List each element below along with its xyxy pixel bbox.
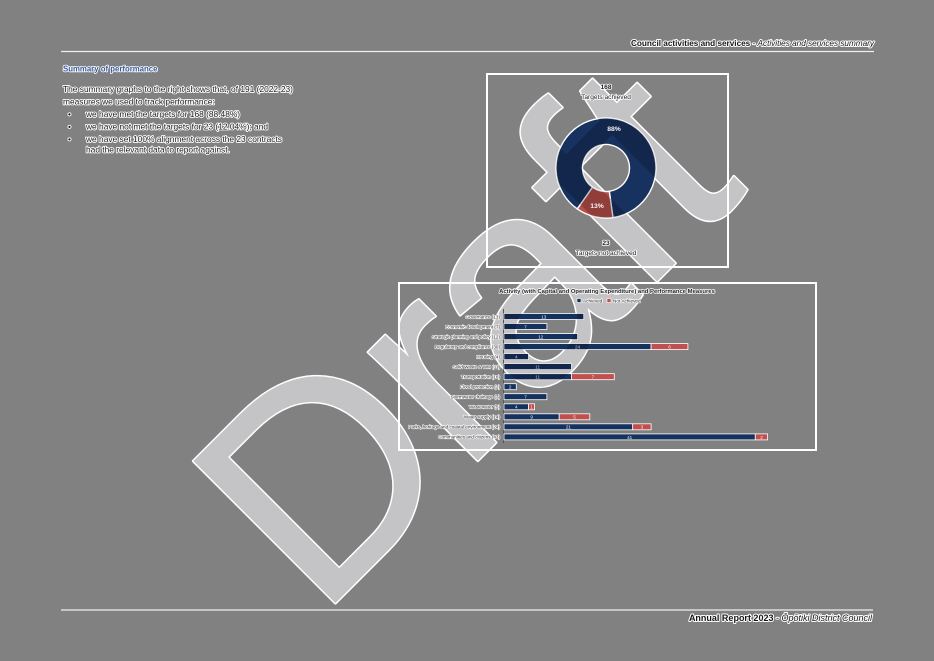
svg-text:3: 3 bbox=[641, 425, 644, 430]
svg-text:Wastewater (5): Wastewater (5) bbox=[469, 405, 500, 410]
svg-text:we have set 100% alignment acr: we have set 100% alignment across the 23… bbox=[85, 134, 282, 144]
svg-text:Targets not achieved: Targets not achieved bbox=[576, 250, 637, 257]
svg-text:168: 168 bbox=[600, 84, 611, 91]
svg-text:Housing (4): Housing (4) bbox=[476, 354, 500, 359]
svg-text:we have met the targets for 16: we have met the targets for 168 (88.48%) bbox=[85, 109, 240, 119]
svg-text:Annual Report 2023 - Ōpōtiki D: Annual Report 2023 - Ōpōtiki District Co… bbox=[689, 613, 873, 623]
svg-text:2: 2 bbox=[760, 435, 763, 440]
svg-text:Governance (13): Governance (13) bbox=[466, 314, 501, 319]
svg-text:Economic development (7): Economic development (7) bbox=[445, 324, 500, 329]
svg-text:•: • bbox=[68, 109, 71, 119]
svg-text:•: • bbox=[68, 134, 71, 144]
svg-text:Regulatory and compliance (30): Regulatory and compliance (30) bbox=[435, 344, 501, 349]
svg-text:13%: 13% bbox=[590, 203, 604, 210]
svg-text:Parks, heritage and coastal en: Parks, heritage and coastal environment … bbox=[408, 425, 500, 430]
svg-text:88%: 88% bbox=[607, 126, 621, 133]
svg-text:Activity (with Capital and Ope: Activity (with Capital and Operating Exp… bbox=[499, 289, 715, 295]
svg-text:The summary graphs to the righ: The summary graphs to the right shows th… bbox=[63, 84, 293, 94]
svg-text:Council activities and service: Council activities and services - Activi… bbox=[631, 39, 875, 48]
svg-text:Water supply (14): Water supply (14) bbox=[464, 415, 501, 420]
svg-text:Transportation (18): Transportation (18) bbox=[461, 375, 500, 380]
svg-text:Achieved: Achieved bbox=[583, 299, 603, 304]
svg-text:Strategic planning and policy: Strategic planning and policy (12) bbox=[432, 334, 501, 339]
svg-text:measures we used to track perf: measures we used to track performance: bbox=[63, 97, 215, 107]
svg-text:Flood protection (2): Flood protection (2) bbox=[460, 385, 500, 390]
svg-text:Stormwater drainage (7): Stormwater drainage (7) bbox=[450, 395, 500, 400]
svg-text:Solid Waste & WM (11): Solid Waste & WM (11) bbox=[453, 364, 501, 369]
svg-text:Not Achieved: Not Achieved bbox=[613, 299, 641, 304]
svg-text:Communities and citizens (43): Communities and citizens (43) bbox=[438, 435, 500, 440]
svg-text:had the relevant data to repor: had the relevant data to report against. bbox=[86, 145, 230, 155]
svg-text:41: 41 bbox=[627, 435, 633, 440]
svg-text:•: • bbox=[68, 122, 71, 132]
svg-text:23: 23 bbox=[602, 240, 610, 247]
svg-text:Summary of performance: Summary of performance bbox=[63, 65, 158, 74]
svg-text:we have not met the targets fo: we have not met the targets for 23 (12.0… bbox=[85, 122, 268, 132]
svg-text:Targets achieved: Targets achieved bbox=[581, 94, 631, 101]
